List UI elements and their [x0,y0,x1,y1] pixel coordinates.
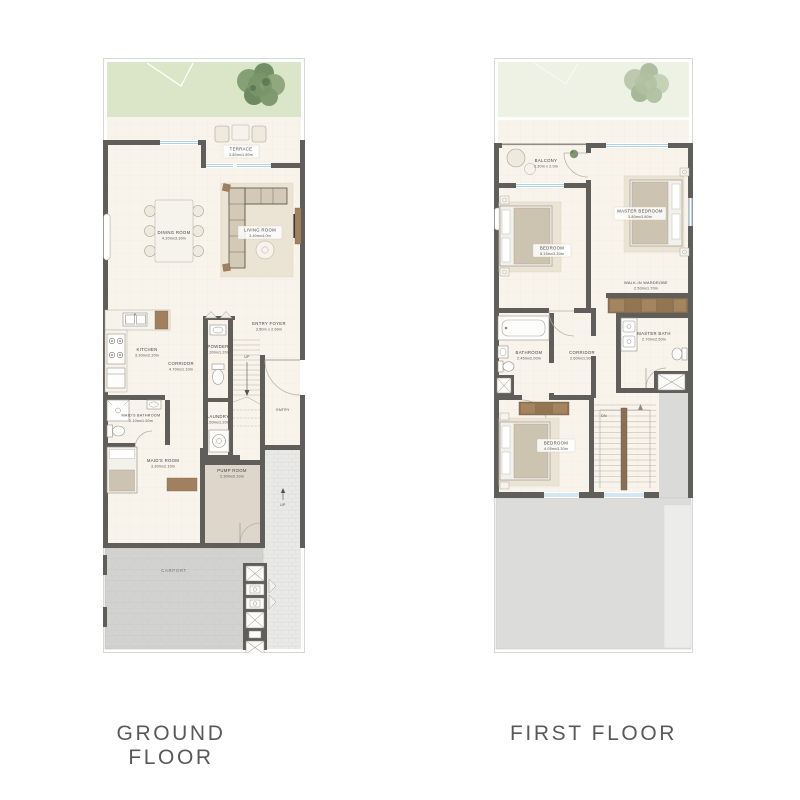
svg-text:3.30mx2.20m: 3.30mx2.20m [135,354,159,358]
room-label-wardrobe: WALK-IN WARDROBE [624,281,668,285]
first-floor-plan: BALCONY 3.30m x 2.0m MASTER BEDROOM 3.80… [494,58,693,653]
svg-text:KITCHEN: KITCHEN [137,347,158,352]
sink-icon [210,325,226,335]
svg-text:3.80mx3.80m: 3.80mx3.80m [628,215,652,219]
room-label-laundry: LAUNDRY [207,414,230,419]
svg-text:2.45mx2.00m: 2.45mx2.00m [517,357,541,361]
bed-icon [500,196,552,276]
laundry: LAUNDRY 1.50mx1.20m [206,414,230,452]
ground-floor-plan: CARPORT [103,58,305,653]
stove-icon [107,334,125,364]
up-label: UP [244,355,250,359]
svg-text:3.40mx4.0m: 3.40mx4.0m [249,234,271,238]
svg-text:BEDROOM: BEDROOM [544,441,568,446]
room-label-maids-room: MAID'S ROOM [147,458,179,463]
svg-text:4.70mx1.10m: 4.70mx1.10m [169,368,193,372]
floorplan-sheet: CARPORT [0,0,800,800]
entry-label: ENTRY [276,408,290,412]
svg-text:POWDER: POWDER [207,344,228,349]
double-vanity [621,318,637,351]
roof-over-carport [496,498,691,649]
balcony-railing [496,144,591,146]
void-open-below [659,393,688,498]
room-label-bedroom-1: BEDROOM 5.15mx3.30m [533,244,571,257]
washer-icon [209,430,229,452]
bay-window [104,214,111,260]
svg-text:DINING ROOM: DINING ROOM [158,230,191,235]
room-label-bathroom: BATHROOM [516,350,543,355]
svg-text:3.50m x 2.60m: 3.50m x 2.60m [256,328,282,332]
room-label-bedroom-2: BEDROOM 4.05mx3.30m [537,439,575,452]
plant-icon [223,263,231,271]
dn-label: DN [601,414,607,418]
svg-text:2.70mx2.50m: 2.70mx2.50m [642,338,666,342]
svg-text:2.10mx1.50m: 2.10mx1.50m [129,419,153,423]
svg-text:5.15mx3.30m: 5.15mx3.30m [540,252,564,256]
svg-text:ENTRY FOYER: ENTRY FOYER [252,321,286,326]
svg-text:UP: UP [280,503,286,507]
balcony-chair [507,149,525,167]
svg-text:CORRIDOR: CORRIDOR [168,361,194,366]
wardrobe-units [608,298,688,313]
svg-text:3.30mx2.10m: 3.30mx2.10m [151,465,175,469]
room-label-master-bath: MASTER BATH [637,331,671,336]
first-floor-title: FIRST FLOOR [494,722,693,746]
toilet-icon [498,361,514,372]
tv-console [295,208,301,244]
svg-text:MASTER BEDROOM: MASTER BEDROOM [617,209,663,214]
svg-text:BEDROOM: BEDROOM [540,246,564,251]
ground-floor-title: GROUND FLOOR [70,722,272,770]
garden [107,62,301,117]
shaft-icon [494,375,514,396]
sink-icon [498,346,508,358]
svg-text:2.60mx1.90m: 2.60mx1.90m [570,357,594,361]
shaft-box [654,371,689,393]
bathtub-icon [498,316,549,340]
svg-text:4.20mx3.30m: 4.20mx3.30m [162,237,186,241]
svg-text:3.80mx1.80m: 3.80mx1.80m [229,153,253,157]
room-label-maids-bathroom: MAID'S BATHROOM [122,414,161,418]
coffee-table [256,241,274,259]
sink-icon [147,400,161,409]
svg-text:4.05mx3.30m: 4.05mx3.30m [544,447,568,451]
master-bedroom: MASTER BEDROOM 3.80mx3.80m [614,168,689,256]
svg-text:2.30mx1.20m: 2.30mx1.20m [206,351,230,355]
toilet-icon [212,364,224,385]
svg-text:2.30mx2.10m: 2.30mx2.10m [220,475,244,479]
fridge-icon [107,368,125,388]
plant-icon [222,183,230,191]
carport-area: CARPORT [105,548,263,649]
garden-faded [498,62,689,117]
room-label-pump-room: PUMP ROOM [217,468,247,473]
svg-text:LIVING ROOM: LIVING ROOM [244,228,276,233]
room-label-living: LIVING ROOM 3.40mx4.0m [238,226,282,239]
svg-text:1.50mx1.20m: 1.50mx1.20m [206,421,230,425]
tv-icon [293,214,295,238]
svg-text:TERRACE: TERRACE [230,147,253,152]
bed-icon [107,447,137,493]
room-label-balcony: BALCONY [535,158,558,163]
closet-units [519,402,569,415]
dresser [167,478,197,491]
shower-icon [107,400,129,421]
room-label-carport: CARPORT [161,568,187,573]
cutting-board [155,311,168,329]
svg-text:3.30m x 2.0m: 3.30m x 2.0m [534,165,558,169]
terrace-seating [215,125,266,142]
toilet-icon [672,348,687,360]
room-label-terrace: TERRACE 3.80mx1.80m [223,145,259,158]
room-label-master-bedroom: MASTER BEDROOM 3.80mx3.80m [614,207,666,220]
svg-text:2.50mx1.70m: 2.50mx1.70m [634,287,658,291]
svg-text:CORRIDOR: CORRIDOR [569,350,595,355]
toilet-icon [107,425,125,437]
stair-railing [621,408,627,490]
